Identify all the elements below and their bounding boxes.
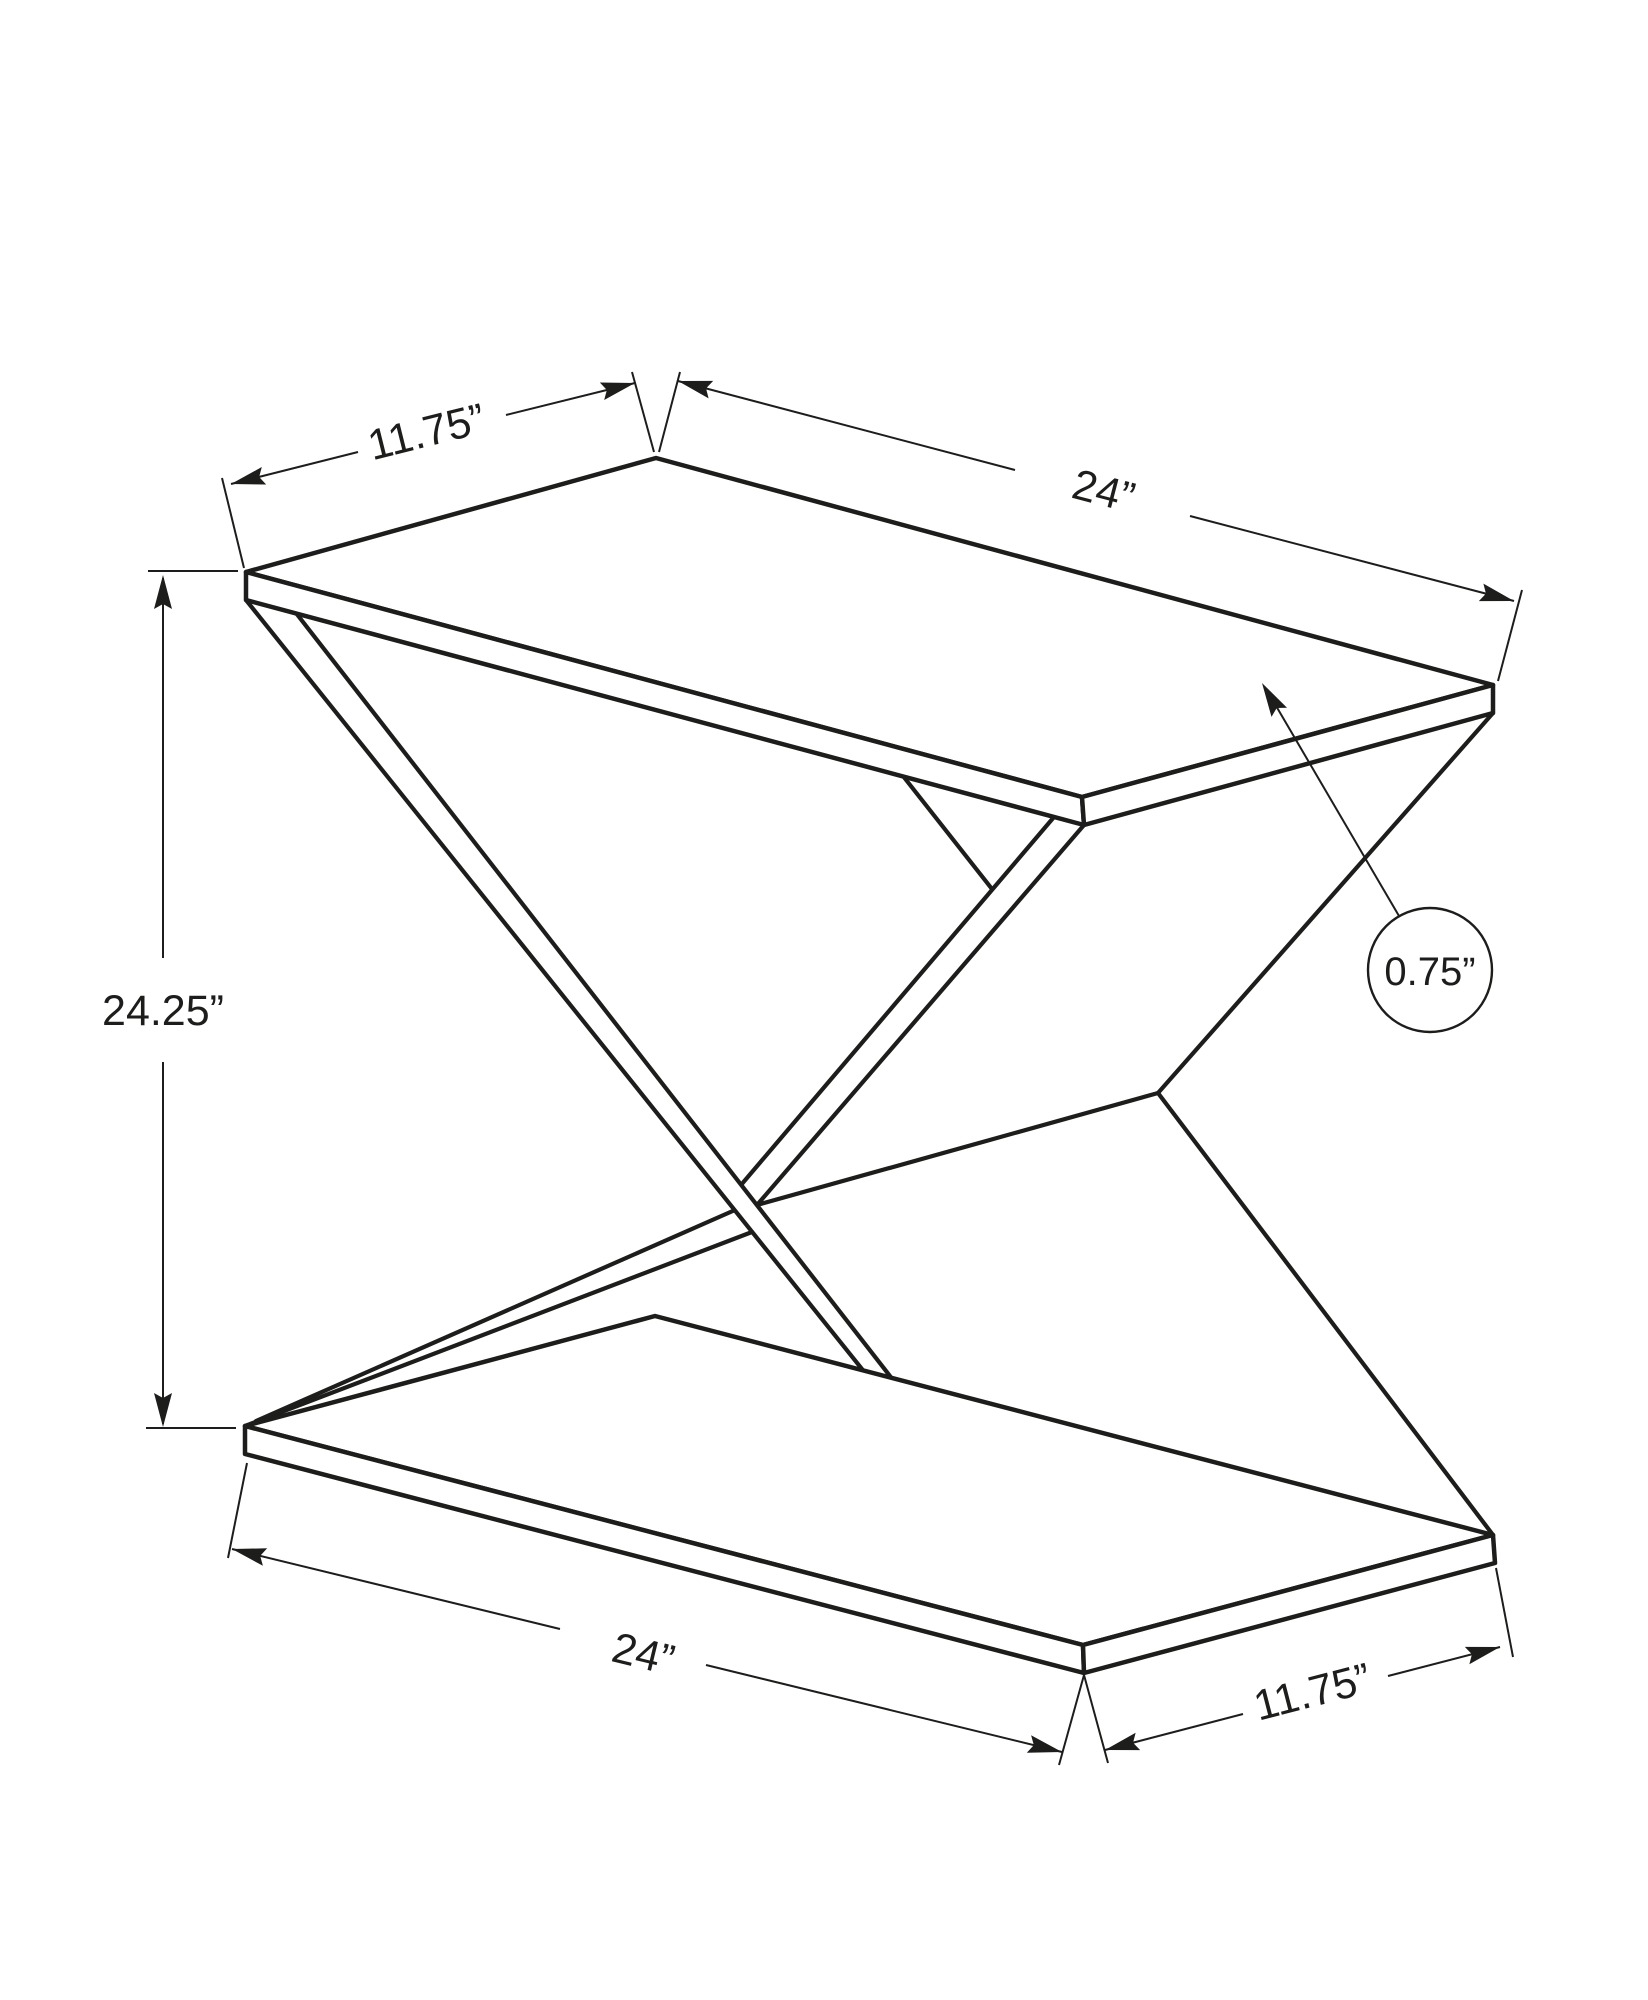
extension-line <box>1084 1675 1108 1763</box>
arrowhead <box>154 1393 172 1427</box>
arrowhead <box>600 374 637 400</box>
arrowhead <box>1027 1735 1064 1761</box>
dimension-line <box>232 1549 560 1629</box>
arrowhead <box>1465 1638 1502 1664</box>
table-top-slab <box>246 458 1493 825</box>
dim-top-width-label: 24” <box>1067 460 1139 522</box>
arrowhead <box>1103 1733 1140 1759</box>
dim-bottom-width-label: 24” <box>607 1624 679 1685</box>
arrowhead <box>1479 584 1516 610</box>
furniture-dimension-diagram: 11.75” 24” 24.25” 0.75” 24” <box>0 0 1648 2000</box>
arrowhead <box>230 1540 267 1566</box>
dimension-line <box>678 381 1015 470</box>
extension-line <box>659 372 680 452</box>
right-strut-front-edge <box>757 825 1084 1205</box>
extension-line <box>1059 1675 1084 1765</box>
dimension-line <box>706 1665 1062 1752</box>
extension-line <box>632 372 654 452</box>
extension-line <box>1498 590 1522 681</box>
strut-crossing-seam <box>757 1093 1158 1205</box>
dim-top-thickness-label: 0.75” <box>1384 950 1475 994</box>
extension-line <box>222 478 244 568</box>
dimension-line <box>1190 516 1514 601</box>
extension-line <box>228 1463 247 1558</box>
dim-top-depth-label: 11.75” <box>363 395 490 470</box>
extension-line <box>1496 1568 1513 1657</box>
right-strut-thickness-edge <box>741 817 1054 1185</box>
arrowhead <box>154 575 172 609</box>
arrowhead <box>229 467 266 493</box>
diagram-page: 11.75” 24” 24.25” 0.75” 24” <box>0 0 1648 2000</box>
arrowhead <box>676 372 713 398</box>
dim-bottom-depth-label: 11.75” <box>1249 1654 1376 1730</box>
dimension-height: 24.25” <box>102 571 238 1428</box>
dim-height-label: 24.25” <box>102 987 224 1035</box>
